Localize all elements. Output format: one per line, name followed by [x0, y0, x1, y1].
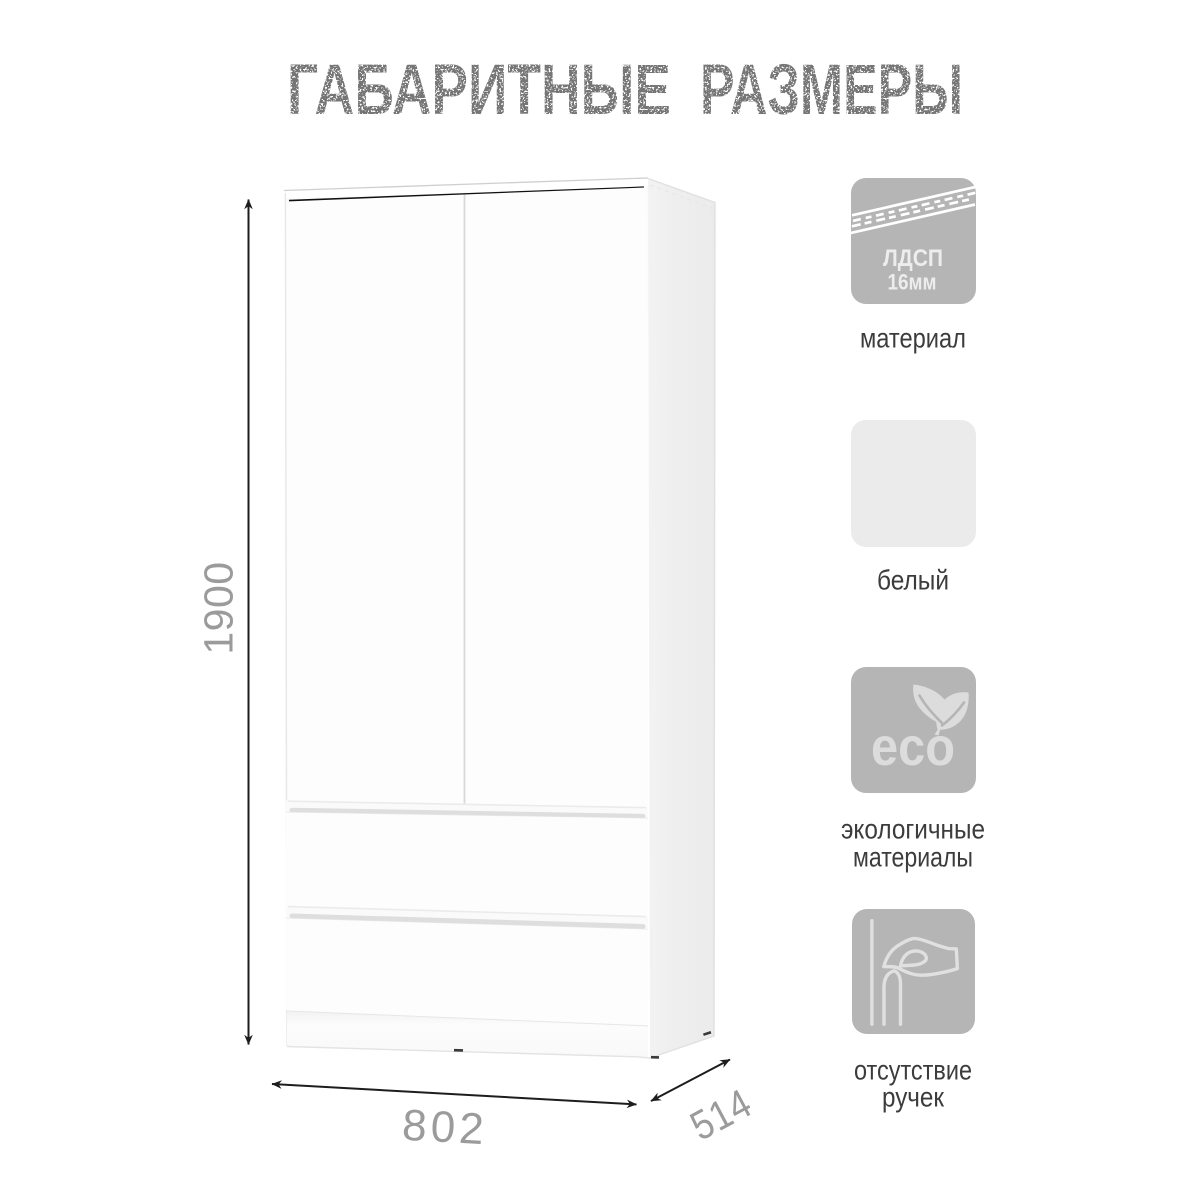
svg-text:514: 514 [683, 1080, 759, 1150]
svg-text:eco: eco [871, 717, 955, 777]
svg-text:1900: 1900 [196, 561, 242, 654]
svg-text:ЛДСП: ЛДСП [883, 245, 943, 272]
svg-text:материалы: материалы [853, 842, 973, 873]
svg-text:16мм: 16мм [888, 270, 937, 295]
svg-text:ручек: ручек [882, 1082, 945, 1113]
svg-text:материал: материал [860, 323, 966, 354]
svg-text:802: 802 [401, 1101, 489, 1155]
svg-text:экологичные: экологичные [841, 814, 985, 845]
svg-text:белый: белый [877, 565, 949, 596]
svg-text:ГАБАРИТНЫЕРАЗМЕРЫ: ГАБАРИТНЫЕРАЗМЕРЫ [287, 51, 963, 130]
